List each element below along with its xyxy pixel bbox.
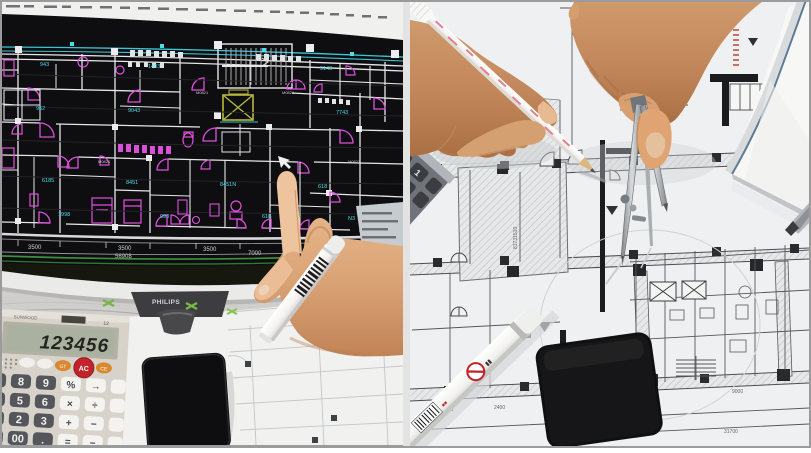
svg-text:M0821: M0821 [348,159,361,164]
svg-text:81731510: 81731510 [513,227,519,249]
svg-text:AC: AC [79,365,89,373]
svg-text:1998: 1998 [58,212,70,218]
svg-text:962: 962 [36,106,45,112]
svg-text:12: 12 [103,321,109,327]
svg-text:3500: 3500 [28,245,42,251]
svg-text:6: 6 [41,396,48,408]
svg-text:31700: 31700 [724,429,738,435]
svg-text:M0821: M0821 [196,90,209,95]
svg-text:→: → [90,381,101,393]
svg-text:+: + [65,418,72,429]
svg-text:7743: 7743 [336,110,348,116]
svg-text:00: 00 [11,433,24,446]
svg-text:8451N: 8451N [220,182,236,188]
svg-text:8451: 8451 [126,180,138,186]
svg-text:9: 9 [43,378,50,390]
svg-text:1403: 1403 [148,64,160,70]
svg-text:123456: 123456 [39,332,109,357]
svg-text:N3: N3 [348,216,355,222]
svg-text:2: 2 [15,414,22,426]
svg-text:8: 8 [18,376,25,388]
svg-text:−: − [90,419,97,430]
svg-text:943: 943 [40,62,49,68]
svg-text:9043: 9043 [128,108,140,114]
svg-text:6185: 6185 [42,178,54,184]
svg-text:M0821: M0821 [98,159,111,164]
svg-text:2400: 2400 [494,405,505,411]
svg-text:998: 998 [160,214,169,220]
svg-text:PHILIPS: PHILIPS [152,299,180,306]
svg-text:3500: 3500 [203,247,217,253]
svg-text:3: 3 [40,415,47,427]
svg-text:%: % [66,380,76,391]
svg-text:9143: 9143 [320,66,332,72]
svg-text:5: 5 [16,395,23,407]
svg-text:CE: CE [100,366,108,372]
svg-text:×: × [67,399,74,410]
svg-text:9000: 9000 [732,389,743,395]
svg-text:618: 618 [318,184,327,190]
svg-text:61E: 61E [262,214,272,220]
svg-text:GT: GT [59,364,66,370]
svg-text:3500: 3500 [118,246,132,252]
svg-text:M0821: M0821 [282,90,295,95]
